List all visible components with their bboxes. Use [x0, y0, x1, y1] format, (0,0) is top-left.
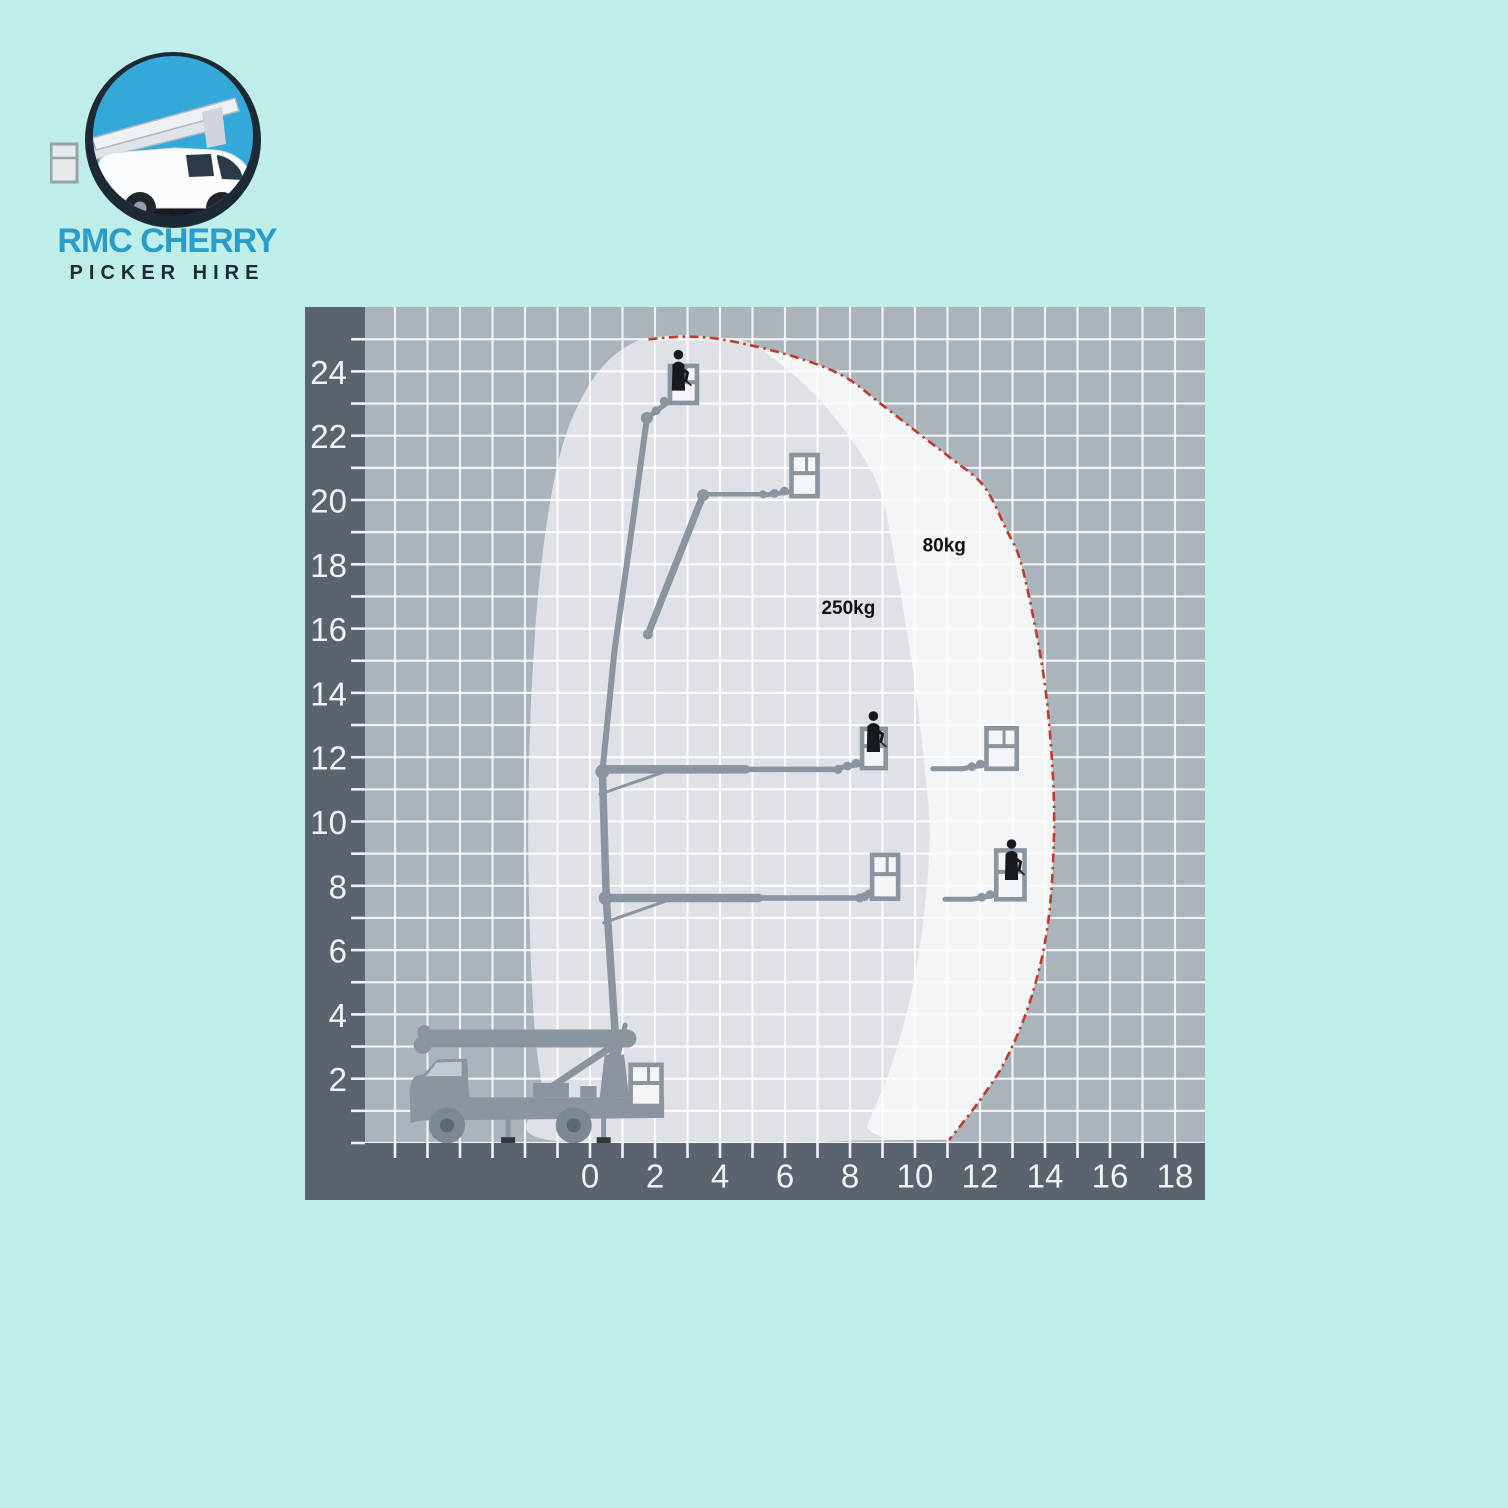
y-axis-label: 24 — [310, 354, 347, 391]
load-label-250kg: 250kg — [821, 598, 875, 619]
x-axis-label: 0 — [581, 1158, 599, 1195]
load-label-80kg: 80kg — [923, 535, 966, 556]
y-axis-label: 8 — [329, 868, 347, 905]
y-axis-label: 10 — [310, 804, 347, 841]
x-axis-label: 12 — [962, 1158, 999, 1195]
y-axis-label: 20 — [310, 483, 347, 520]
x-axis-label: 8 — [841, 1158, 859, 1195]
logo-title: RMC CHERRY — [57, 222, 278, 260]
y-axis-label: 18 — [310, 547, 347, 584]
x-axis-label: 2 — [646, 1158, 664, 1195]
y-axis-label: 12 — [310, 740, 347, 777]
y-axis-label: 2 — [329, 1061, 347, 1098]
x-axis-label: 10 — [897, 1158, 934, 1195]
y-axis-label: 6 — [329, 933, 347, 970]
y-axis-label: 16 — [310, 611, 347, 648]
company-logo: RMC CHERRY PICKER HIRE — [50, 26, 330, 316]
logo-basket-icon — [51, 144, 77, 182]
x-axis-label: 14 — [1027, 1158, 1064, 1195]
working-envelope-chart: 80kg250kg0246810121416182468101214161820… — [305, 307, 1205, 1200]
x-axis-label: 18 — [1157, 1158, 1194, 1195]
x-axis-label: 16 — [1092, 1158, 1129, 1195]
x-axis-label: 6 — [776, 1158, 794, 1195]
x-axis-label: 4 — [711, 1158, 729, 1195]
y-axis-label: 4 — [329, 997, 347, 1034]
logo-subtitle: PICKER HIRE — [70, 262, 265, 284]
y-axis-label: 14 — [310, 675, 347, 712]
envelope-diagram-svg: 80kg250kg0246810121416182468101214161820… — [305, 307, 1205, 1200]
y-axis-label: 22 — [310, 418, 347, 455]
page-background: RMC CHERRY PICKER HIRE 80kg250kg02468101… — [0, 0, 1508, 1508]
x-axis-band — [305, 1143, 1205, 1200]
logo-badge: RMC CHERRY PICKER HIRE — [50, 26, 330, 316]
